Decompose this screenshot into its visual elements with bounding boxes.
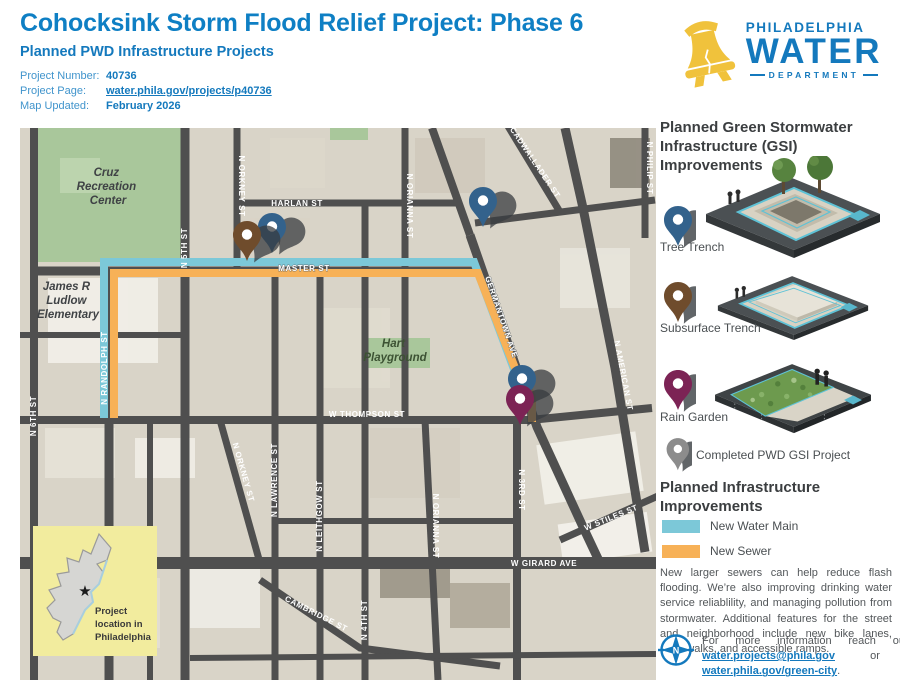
logo-water: WATER: [746, 35, 882, 68]
street-label-orianna-lower: N ORIANNA ST: [431, 494, 440, 559]
contact-suffix: .: [837, 665, 840, 677]
project-page-label: Project Page:: [20, 84, 106, 99]
project-number-label: Project Number:: [20, 69, 106, 84]
street-label-girard: W GIRARD AVE: [511, 559, 577, 568]
sewer-swatch: [662, 545, 700, 558]
water-main-swatch: [662, 520, 700, 533]
inset-locator-map: ★ Project location in Philadelphia: [33, 526, 157, 656]
map-canvas: N 6TH ST N 5TH ST N RANDOLPH ST N ORKNEY…: [20, 128, 656, 680]
svg-text:N: N: [673, 646, 680, 656]
header: Cohocksink Storm Flood Relief Project: P…: [20, 8, 660, 114]
water-main-label: New Water Main: [710, 519, 798, 533]
street-label-n5th: N 5TH ST: [180, 228, 189, 268]
street-label-n4th: N 4TH ST: [360, 600, 369, 640]
north-compass-icon: N: [656, 630, 696, 670]
contact-site-link[interactable]: water.phila.gov/green-city: [702, 665, 837, 677]
tree-trench-illustration: [698, 156, 888, 260]
logo-department-text: DEPARTMENT: [769, 70, 859, 80]
project-page-link[interactable]: water.phila.gov/projects/p40736: [106, 84, 272, 99]
street-label-leithgow: N LEITHGOW ST: [315, 480, 324, 551]
street-label-lawrence: N LAWRENCE ST: [270, 443, 279, 517]
street-label-master: MASTER ST: [278, 264, 330, 273]
pwd-logo: PHILADELPHIA WATER DEPARTMENT: [674, 12, 882, 88]
contact-paragraph: For more information reach out to water.…: [702, 634, 900, 680]
map-updated-value: February 2026: [106, 99, 181, 114]
department-line-left: [750, 74, 765, 76]
subsurface-trench-pin-icon: [660, 278, 696, 326]
project-flyer: Cohocksink Storm Flood Relief Project: P…: [0, 0, 900, 695]
street-label-harlan: HARLAN ST: [271, 199, 323, 208]
street-label-thompson: W THOMPSON ST: [329, 410, 405, 419]
street-label-n3rd: N 3RD ST: [517, 469, 526, 510]
subsurface-trench-label: Subsurface Trench: [660, 321, 761, 335]
legend-sidebar: Planned Green Stormwater Infrastructure …: [660, 118, 892, 684]
contact-middle: or visit: [870, 650, 900, 662]
project-map: N 6TH ST N 5TH ST N RANDOLPH ST N ORKNEY…: [20, 128, 656, 680]
completed-gsi-label: Completed PWD GSI Project: [696, 448, 850, 462]
infrastructure-heading: Planned Infrastructure Improvements: [660, 478, 870, 516]
department-line-right: [863, 74, 878, 76]
project-number-value: 40736: [106, 69, 137, 84]
tree-trench-label: Tree Trench: [660, 240, 724, 254]
street-label-orkney-upper: N ORKNEY ST: [237, 155, 246, 216]
sewer-label: New Sewer: [710, 544, 771, 558]
street-label-orianna-upper: N ORIANNA ST: [405, 174, 414, 239]
project-info: Project Number: 40736 Project Page: wate…: [20, 69, 660, 114]
street-label-n6th: N 6TH ST: [29, 396, 38, 436]
completed-gsi-pin-icon: [664, 436, 692, 472]
map-updated-label: Map Updated:: [20, 99, 106, 114]
street-label-randolph: N RANDOLPH ST: [100, 331, 109, 405]
logo-department: DEPARTMENT: [746, 70, 882, 80]
project-location-star: ★: [78, 583, 91, 600]
page-subtitle: Planned PWD Infrastructure Projects: [20, 44, 660, 60]
page-title: Cohocksink Storm Flood Relief Project: P…: [20, 8, 660, 38]
rain-garden-pin-icon: [660, 366, 696, 414]
rain-garden-label: Rain Garden: [660, 410, 728, 424]
liberty-bell-icon: [674, 12, 738, 88]
contact-email-link[interactable]: water.projects@phila.gov: [702, 650, 835, 662]
street-label-philip: N PHILIP ST: [645, 142, 654, 195]
contact-prefix: For more information reach out to: [702, 635, 900, 647]
pwd-logo-text: PHILADELPHIA WATER DEPARTMENT: [746, 20, 882, 80]
